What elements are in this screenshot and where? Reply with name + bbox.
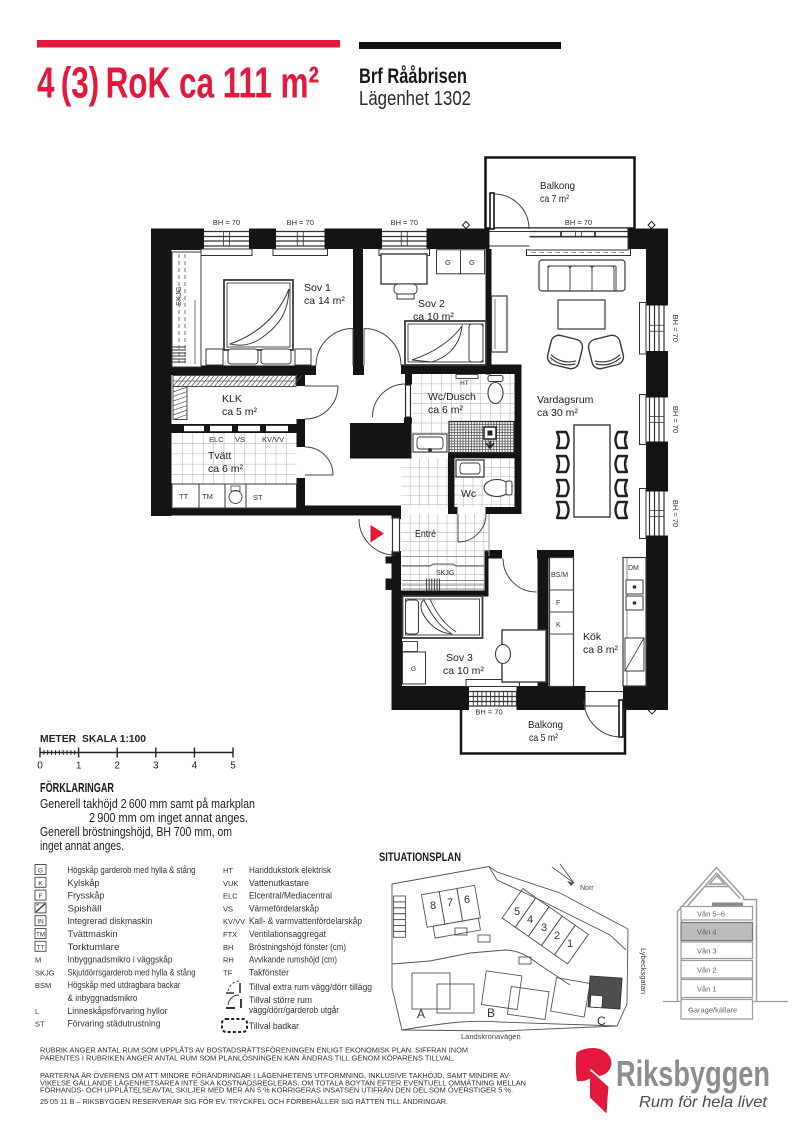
svg-text:Vån 2: Vån 2 [697,965,717,974]
svg-text:1: 1 [76,761,82,772]
svg-text:25 05 11 B – RIKSBYGGEN RESERV: 25 05 11 B – RIKSBYGGEN RESERVERAR SIG F… [40,1097,448,1106]
svg-text:Norr: Norr [580,885,594,892]
svg-text:HT: HT [223,866,233,875]
svg-text:HT: HT [460,380,469,387]
svg-text:Vån 4: Vån 4 [697,928,717,937]
svg-text:KV/VV: KV/VV [262,435,284,444]
svg-text:Garage/källare: Garage/källare [688,1005,737,1014]
svg-text:TM: TM [36,932,45,939]
svg-text:Vån 3: Vån 3 [697,946,717,955]
svg-text:BH = 70: BH = 70 [475,708,502,717]
svg-text:BH = 70: BH = 70 [671,406,680,433]
svg-text:G: G [411,666,416,673]
svg-text:Högskåp garderob med hylla & s: Högskåp garderob med hylla & stång [68,865,196,875]
svg-text:Inbyggnadsmikro i väggskåp: Inbyggnadsmikro i väggskåp [68,955,173,965]
svg-text:ca 5 m²: ca 5 m² [222,406,258,418]
svg-text:Linneskåpsförvaring hyllor: Linneskåpsförvaring hyllor [68,1006,168,1016]
svg-text:F: F [39,893,43,900]
svg-text:SKJG: SKJG [436,570,454,577]
svg-text:Tvättmaskin: Tvättmaskin [68,929,118,939]
svg-text:Takfönster: Takfönster [249,967,289,977]
svg-text:Balkong: Balkong [528,719,563,731]
svg-text:Kylskåp: Kylskåp [68,878,100,888]
svg-text:ca 8 m²: ca 8 m² [583,644,619,656]
svg-text:BH = 70: BH = 70 [565,218,592,227]
svg-text:Generell bröstningshöjd, BH 70: Generell bröstningshöjd, BH 700 mm, om [40,825,232,839]
svg-text:G: G [445,258,451,267]
svg-text:Vardagsrum: Vardagsrum [537,394,594,406]
svg-text:TM: TM [202,492,213,501]
svg-text:Högskåp med utdragbara backar: Högskåp med utdragbara backar [68,980,181,990]
svg-text:RH: RH [223,956,234,965]
svg-text:VS: VS [235,435,245,444]
svg-text:SKALA 1:100: SKALA 1:100 [82,733,146,745]
svg-text:F: F [556,600,560,607]
svg-text:5: 5 [230,761,236,772]
svg-text:& inbyggnadsmikro: & inbyggnadsmikro [68,993,138,1003]
svg-text:8: 8 [430,900,436,912]
svg-text:0: 0 [37,761,43,772]
svg-text:4 (3) RoK ca 111 m²: 4 (3) RoK ca 111 m² [37,59,319,108]
svg-text:ca 14 m²: ca 14 m² [304,295,345,307]
svg-text:IN: IN [37,919,44,926]
svg-text:7: 7 [447,897,453,909]
svg-text:FÖRKLARINGAR: FÖRKLARINGAR [40,780,114,795]
svg-text:BS/M: BS/M [551,572,568,579]
svg-text:A: A [417,1007,425,1021]
svg-text:Sov 1: Sov 1 [304,282,331,294]
svg-text:SKJG: SKJG [35,968,55,977]
svg-text:Handdukstork elektrisk: Handdukstork elektrisk [249,865,331,875]
svg-text:Tvätt: Tvätt [208,450,231,462]
svg-text:2: 2 [114,761,120,772]
svg-text:2 900 mm om inget annat anges.: 2 900 mm om inget annat anges. [89,811,248,825]
svg-text:BH = 70: BH = 70 [213,218,240,227]
svg-text:Lybecksgatan: Lybecksgatan [639,948,648,994]
svg-text:Landskronavägen: Landskronavägen [461,1032,521,1041]
svg-text:ca 6 m²: ca 6 m² [208,463,244,475]
svg-text:Rum för hela livet: Rum för hela livet [639,1094,768,1111]
svg-text:ca 6 m²: ca 6 m² [428,404,464,416]
svg-text:Bröstningshöjd fönster (cm): Bröstningshöjd fönster (cm) [249,942,346,952]
svg-text:Lägenhet 1302: Lägenhet 1302 [359,88,471,110]
svg-text:TF: TF [223,968,233,977]
svg-text:M: M [35,956,41,965]
svg-text:B: B [487,1006,495,1020]
svg-text:ca 7 m²: ca 7 m² [540,193,569,205]
svg-text:ST: ST [35,1020,45,1029]
svg-text:VS: VS [223,904,233,913]
svg-text:Vattenutkastare: Vattenutkastare [249,878,309,888]
svg-text:G: G [469,258,475,267]
svg-text:K: K [556,622,561,629]
svg-text:Wc/Dusch: Wc/Dusch [428,391,476,403]
svg-text:Brf Rååbrisen: Brf Rååbrisen [359,65,467,88]
svg-text:3: 3 [153,761,159,772]
svg-text:Integrerad diskmaskin: Integrerad diskmaskin [68,916,153,926]
svg-text:Värmefördelarskåp: Värmefördelarskåp [249,903,319,913]
svg-text:ca 10 m²: ca 10 m² [443,665,484,677]
svg-text:Torktumlare: Torktumlare [68,942,120,952]
svg-text:Ventilationsaggregat: Ventilationsaggregat [249,929,326,939]
svg-text:Tillval större rum: Tillval större rum [249,995,312,1005]
svg-text:Sov 3: Sov 3 [446,652,473,664]
svg-text:BH = 70: BH = 70 [287,218,314,227]
svg-text:ca 5 m²: ca 5 m² [529,732,558,744]
svg-text:Wc: Wc [461,488,476,500]
svg-text:Kall- & varmvattenfördelarskåp: Kall- & varmvattenfördelarskåp [249,916,362,926]
svg-text:5: 5 [514,906,520,918]
svg-text:4: 4 [527,914,533,926]
svg-text:6: 6 [464,894,470,906]
svg-text:SITUATIONSPLAN: SITUATIONSPLAN [379,850,461,864]
svg-text:BSM: BSM [35,981,51,990]
svg-text:ca 30 m²: ca 30 m² [537,407,578,419]
svg-text:VUK: VUK [223,879,238,888]
svg-text:SKJG: SKJG [174,286,183,306]
svg-text:Sov 2: Sov 2 [418,298,445,310]
svg-text:KV/VV: KV/VV [223,917,245,926]
svg-text:inget annat anges.: inget annat anges. [40,839,124,853]
svg-text:PARENTES I RUBRIKEN ANGER ANTA: PARENTES I RUBRIKEN ANGER ANTAL RUM SOM … [40,1054,455,1063]
svg-text:vägg/dörr/garderob utgår: vägg/dörr/garderob utgår [249,1005,339,1015]
svg-text:Tillval extra rum vägg/dörr ti: Tillval extra rum vägg/dörr tillägg [249,982,372,992]
svg-text:METER: METER [40,733,76,745]
svg-text:Tillval badkar: Tillval badkar [249,1021,299,1031]
svg-text:Vån 5–6: Vån 5–6 [697,909,725,918]
svg-text:BH = 70: BH = 70 [391,218,418,227]
svg-text:FTX: FTX [223,930,237,939]
svg-text:BH = 70: BH = 70 [671,315,680,342]
svg-text:ELC: ELC [209,435,224,444]
svg-text:1: 1 [567,938,573,950]
svg-text:4: 4 [192,761,198,772]
svg-text:FÖRHANDS- OCH UPPLÅTELSEAVTAL: FÖRHANDS- OCH UPPLÅTELSEAVTAL SKILJER ME… [40,1086,513,1095]
svg-text:ELC: ELC [223,892,238,901]
svg-text:Kök: Kök [583,631,602,643]
svg-text:Förvaring städutrustning: Förvaring städutrustning [68,1019,161,1029]
svg-text:Spishäll: Spishäll [68,903,102,913]
svg-text:Entré: Entré [415,528,436,540]
svg-text:Avvikande rumshöjd (cm): Avvikande rumshöjd (cm) [249,955,337,965]
svg-text:Riksbyggen: Riksbyggen [616,1053,770,1094]
svg-text:G: G [38,868,43,875]
svg-text:3: 3 [541,922,547,934]
svg-text:BH: BH [223,943,233,952]
svg-text:L: L [35,1007,39,1016]
svg-text:TT: TT [37,944,45,951]
svg-text:ST: ST [253,493,263,502]
svg-text:Vån 1: Vån 1 [697,985,717,994]
svg-text:KLK: KLK [222,393,242,405]
svg-text:DM: DM [628,565,639,572]
svg-text:BH = 70: BH = 70 [671,500,680,527]
svg-text:Elcentral/Mediacentral: Elcentral/Mediacentral [249,891,332,901]
svg-text:2: 2 [554,930,560,942]
svg-text:Skjutdörrsgarderob med hylla &: Skjutdörrsgarderob med hylla & stång [68,967,196,977]
svg-text:Generell takhöjd 2 600 mm samt: Generell takhöjd 2 600 mm samt på markpl… [40,797,255,811]
svg-text:TT: TT [179,492,189,501]
svg-text:C: C [597,1014,606,1028]
svg-text:Balkong: Balkong [540,180,575,192]
svg-text:Frysskåp: Frysskåp [68,891,105,901]
